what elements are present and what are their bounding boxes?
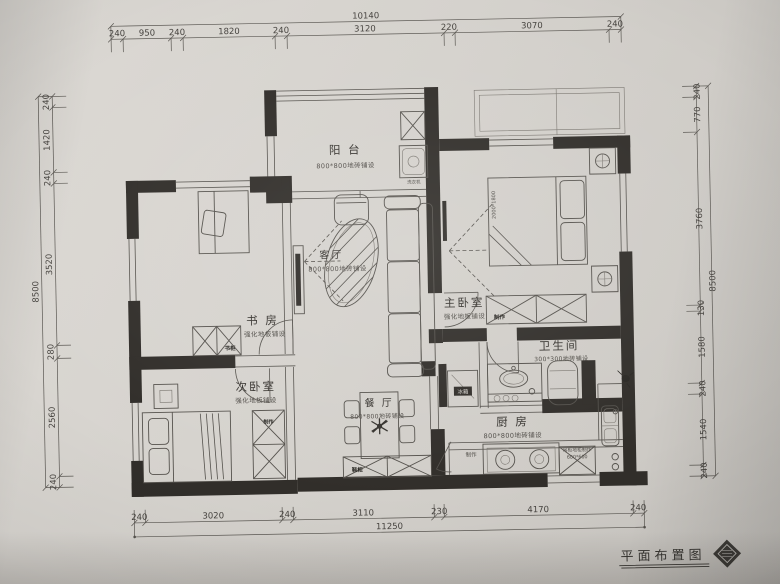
dim-right-seg-3: 130: [697, 300, 707, 316]
base-cabinet-size-label: 600*600: [567, 454, 588, 460]
dimension-chain-top: 10140 240 950 240 1820 240 3120 220 3070…: [108, 6, 625, 52]
floor-label-study: 强化地板铺设: [244, 329, 286, 339]
room-living: 客厅 800*800地砖铺设: [292, 193, 435, 379]
room-label-dining: 餐 厅: [364, 396, 393, 410]
washer-label: 洗衣机: [407, 178, 421, 185]
exterior-ledge: [474, 87, 625, 136]
dim-left-seg-5: 2560: [48, 407, 58, 429]
dim-right-seg-0: 240: [693, 83, 703, 99]
floor-label-living: 800*800地砖铺设: [308, 263, 367, 273]
floor-label-master: 强化地板铺设: [444, 311, 486, 321]
dim-bottom-seg-4: 230: [431, 507, 447, 517]
dimension-chain-right: 8500 240 770 3760 130 1580 240 1540 240: [682, 83, 722, 480]
dim-right-seg-2: 3760: [695, 208, 705, 230]
shoe-cabinet-label: 鞋柜: [352, 466, 364, 474]
dim-bottom-seg-6: 240: [630, 503, 646, 513]
bedroom2-wardrobe-icon: 制作: [252, 410, 285, 479]
dim-bottom-total: 11250: [376, 522, 403, 533]
room-label-balcony: 阳 台: [329, 143, 362, 158]
dim-left-total: 8500: [31, 281, 41, 303]
walls: [124, 83, 648, 497]
bed2-icon: [142, 411, 231, 483]
dim-right-seg-7: 240: [700, 462, 710, 478]
dim-right-total: 8500: [708, 270, 718, 292]
room-bath: 卫生间 300*300地砖铺设: [487, 338, 589, 406]
dim-top-seg-5: 3120: [354, 24, 376, 34]
bookcase-icon: 书柜: [193, 326, 242, 356]
room-study: 书柜 书 房 强化地板铺设: [190, 190, 293, 356]
counter-label: 制作: [466, 450, 478, 458]
fridge-label: 冰箱: [457, 388, 469, 396]
bookcase-label: 书柜: [224, 344, 236, 352]
dim-right-seg-5: 240: [698, 380, 708, 396]
nightstand-icon: [592, 266, 618, 292]
dim-right-seg-4: 1580: [697, 336, 707, 358]
dim-bottom-seg-2: 240: [279, 510, 295, 520]
knob-icon: [612, 453, 619, 460]
room-bedroom2: 制作 次卧室 强化地板铺设: [141, 368, 285, 483]
room-label-kitchen: 厨 房: [496, 414, 529, 429]
dimension-chain-left: 8500 240 1420 240 3520 280 2560 240: [28, 93, 74, 491]
dim-bottom-seg-1: 3020: [202, 511, 224, 521]
room-label-bath: 卫生间: [539, 338, 580, 353]
bed-size-label: 2000*1800: [491, 191, 498, 219]
desk-icon: [198, 191, 249, 254]
tv-cabinet-icon: [293, 246, 304, 314]
vanity-sink-icon: [487, 363, 542, 402]
room-label-master: 主卧室: [444, 295, 485, 310]
bath-door: [487, 342, 519, 374]
dim-top-seg-7: 3070: [521, 21, 543, 31]
nightstand2-icon: [154, 384, 178, 408]
dim-top-seg-8: 240: [607, 19, 623, 29]
room-balcony: 洗衣机 阳 台 800*800地砖铺设: [315, 111, 428, 187]
dim-left-seg-0: 240: [42, 94, 52, 110]
dim-right-seg-1: 770: [693, 106, 703, 122]
fridge-icon: 冰箱: [448, 370, 479, 407]
room-label-study: 书 房: [246, 313, 279, 328]
toilet-icon: [547, 360, 578, 405]
dimension-chain-bottom: 11250 240 3020 240 3110 230 4170 240: [131, 500, 648, 538]
stove-icon: [483, 443, 560, 474]
dim-left-seg-6: 240: [49, 474, 59, 490]
wall-tv-icon: [442, 201, 447, 241]
flue-icon: [401, 111, 426, 139]
master-bed-icon: 2000*1800: [488, 176, 588, 266]
shoe-cabinet-icon: 鞋柜: [343, 455, 431, 478]
floor-label-bath: 300*300地砖铺设: [534, 354, 588, 363]
washing-machine-icon: [399, 145, 428, 178]
dim-left-seg-4: 280: [46, 344, 56, 360]
dim-top-seg-0: 240: [109, 29, 125, 39]
tv-sightlines-master: [448, 204, 494, 297]
title-block: 平面布置图: [619, 539, 742, 569]
floorplan-photo: 10140 240 950 240 1820 240 3120 220 3070…: [0, 0, 780, 584]
dim-right-seg-6: 1540: [699, 419, 709, 441]
company-seal-icon: [713, 539, 742, 568]
dim-bottom-seg-5: 4170: [527, 505, 549, 515]
dim-bottom-seg-3: 3110: [352, 508, 374, 518]
knob-icon: [612, 463, 619, 470]
dim-top-seg-4: 240: [273, 26, 289, 36]
dim-left-seg-2: 240: [43, 170, 53, 186]
room-kitchen: 冰箱 制作 吊柜地柜制作 600*600 厨 房 800*800地砖铺设: [448, 368, 624, 477]
nightstand-icon: [589, 148, 615, 174]
floor-label-balcony: 800*800地砖铺设: [316, 160, 375, 170]
plant-icon: [371, 418, 387, 434]
dim-left-seg-3: 3520: [45, 254, 55, 276]
dim-top-seg-6: 220: [441, 23, 457, 33]
dim-top-total: 10140: [352, 11, 379, 22]
dim-left-seg-1: 1420: [42, 129, 52, 151]
dim-top-seg-3: 1820: [218, 27, 240, 37]
drawing-sheet: 10140 240 950 240 1820 240 3120 220 3070…: [0, 0, 780, 584]
dim-top-seg-2: 240: [169, 28, 185, 38]
dim-top-seg-1: 950: [139, 28, 155, 38]
room-master: 2000*1800 主卧室 强化地板铺设 制作: [441, 148, 619, 327]
base-cabinet-icon: 吊柜地柜制作 600*600: [559, 446, 596, 475]
title-underline: [619, 564, 709, 568]
floorplan-svg: 10140 240 950 240 1820 240 3120 220 3070…: [0, 0, 780, 584]
floor-label-bedroom2: 强化地板铺设: [235, 395, 277, 405]
floor-label-dining: 800*800地砖铺设: [350, 412, 404, 421]
floor-label-kitchen: 800*800地砖铺设: [483, 430, 542, 440]
dim-bottom-seg-0: 240: [131, 513, 147, 523]
drawing-title: 平面布置图: [620, 548, 705, 565]
room-label-living: 客厅: [319, 248, 343, 261]
master-wardrobe-label: 制作: [494, 313, 506, 321]
bedroom2-wardrobe-label: 制作: [263, 418, 273, 425]
room-label-bedroom2: 次卧室: [235, 379, 276, 394]
